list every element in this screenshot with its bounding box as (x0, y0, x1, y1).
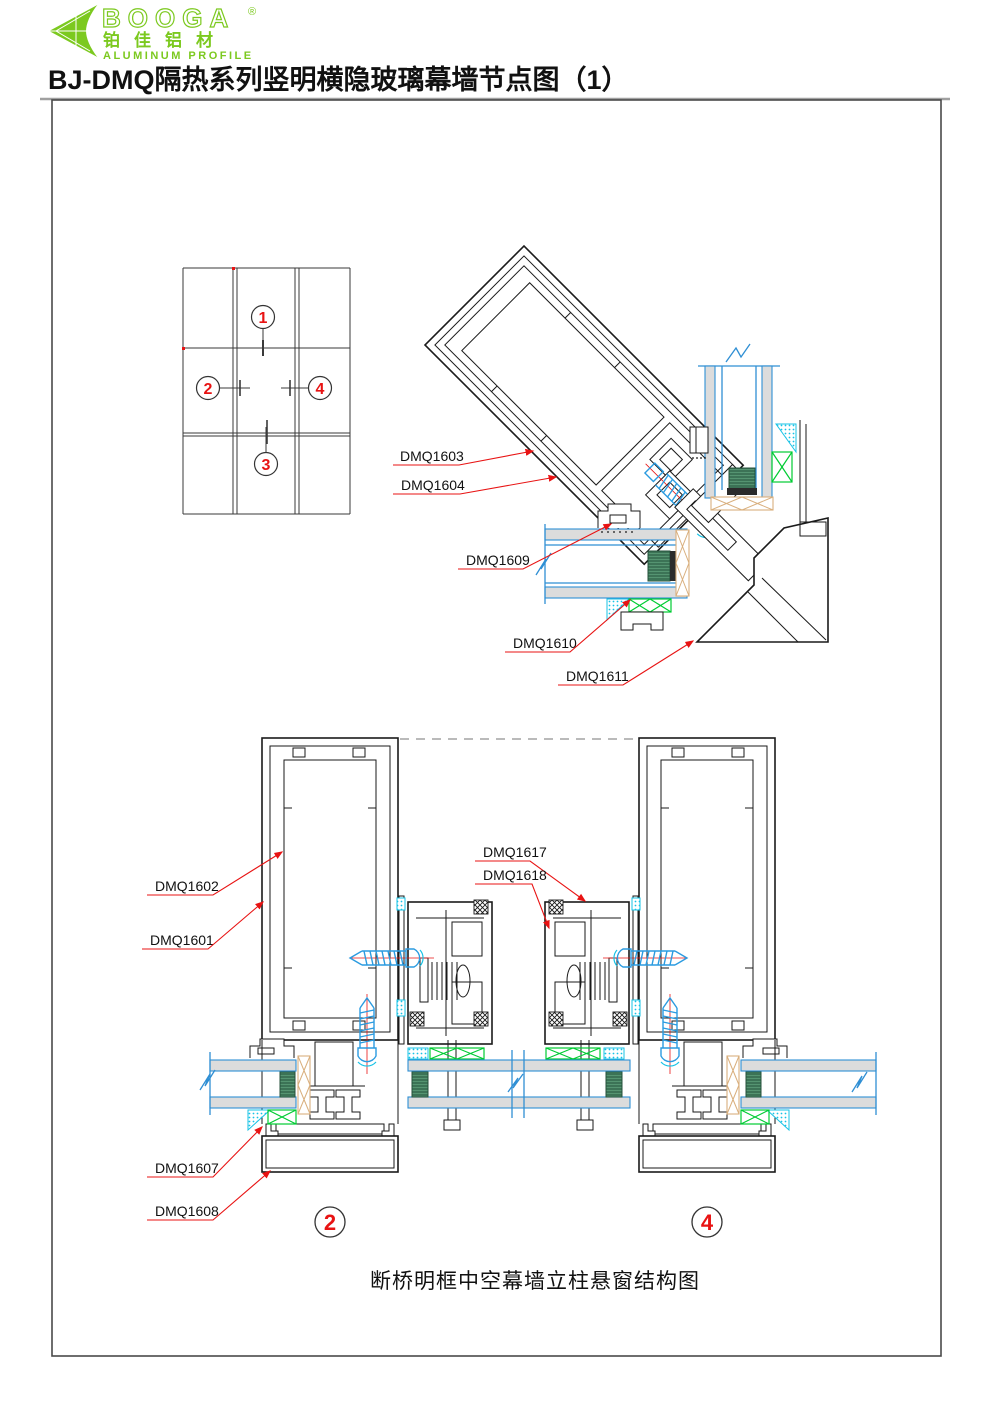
logo-gem-icon (48, 4, 98, 58)
logo: BOOGA ® 铂佳铝材 ALUMINUM PROFILE (48, 3, 256, 62)
label-dmq1608: DMQ1608 (155, 1203, 219, 1219)
right-glass-stub (727, 1052, 876, 1130)
setting-block (729, 468, 755, 488)
svg-text:2: 2 (324, 1210, 336, 1235)
drawing-sheet: BOOGA ® 铂佳铝材 ALUMINUM PROFILE BJ-DMQ隔热系列… (0, 0, 992, 1403)
key-plan-callout-2: 2 (197, 377, 220, 400)
gasket-block (772, 452, 792, 482)
label-dmq1604: DMQ1604 (401, 477, 465, 493)
key-plan-callout-4: 4 (309, 377, 332, 400)
section-marker-right: 4 (692, 1207, 722, 1237)
label-dmq1602: DMQ1602 (155, 878, 219, 894)
label-dmq1609: DMQ1609 (466, 552, 530, 568)
weather-seal (776, 424, 796, 452)
label-dmq1617: DMQ1617 (483, 844, 547, 860)
svg-text:4: 4 (316, 381, 325, 398)
logo-tagline: ALUMINUM PROFILE (103, 50, 254, 62)
drawing-caption: 断桥明框中空幕墙立柱悬窗结构图 (370, 1270, 700, 1293)
key-plan: 1 2 4 3 (182, 267, 350, 514)
logo-registered-mark: ® (248, 6, 256, 18)
label-dmq1611: DMQ1611 (566, 668, 629, 684)
svg-text:1: 1 (259, 310, 268, 327)
label-dmq1610: DMQ1610 (513, 635, 577, 651)
cover-cap (262, 1124, 398, 1172)
section-marker-left: 2 (315, 1207, 345, 1237)
logo-chinese-text: 铂佳铝材 (103, 30, 227, 50)
page-title: BJ-DMQ隔热系列竖明横隐玻璃幕墙节点图（1） (48, 65, 629, 95)
backer-rod (711, 497, 773, 510)
svg-text:4: 4 (701, 1210, 714, 1235)
svg-text:2: 2 (204, 381, 213, 398)
logo-brand-text: BOOGA (102, 3, 235, 33)
drawing-canvas: BOOGA ® 铂佳铝材 ALUMINUM PROFILE BJ-DMQ隔热系列… (0, 0, 992, 1403)
key-plan-callout-3: 3 (255, 453, 278, 476)
label-dmq1618: DMQ1618 (483, 867, 547, 883)
label-dmq1603: DMQ1603 (400, 448, 464, 464)
sash-assembly (397, 896, 492, 1044)
label-dmq1607: DMQ1607 (155, 1160, 219, 1176)
left-glass-stub (200, 1052, 310, 1130)
detail-top-node (425, 246, 828, 642)
backer-rod (676, 530, 689, 596)
svg-text:3: 3 (262, 457, 271, 474)
key-plan-callout-1: 1 (252, 306, 275, 329)
label-dmq1601: DMQ1601 (150, 932, 214, 948)
middle-glass-unit (408, 1048, 630, 1118)
